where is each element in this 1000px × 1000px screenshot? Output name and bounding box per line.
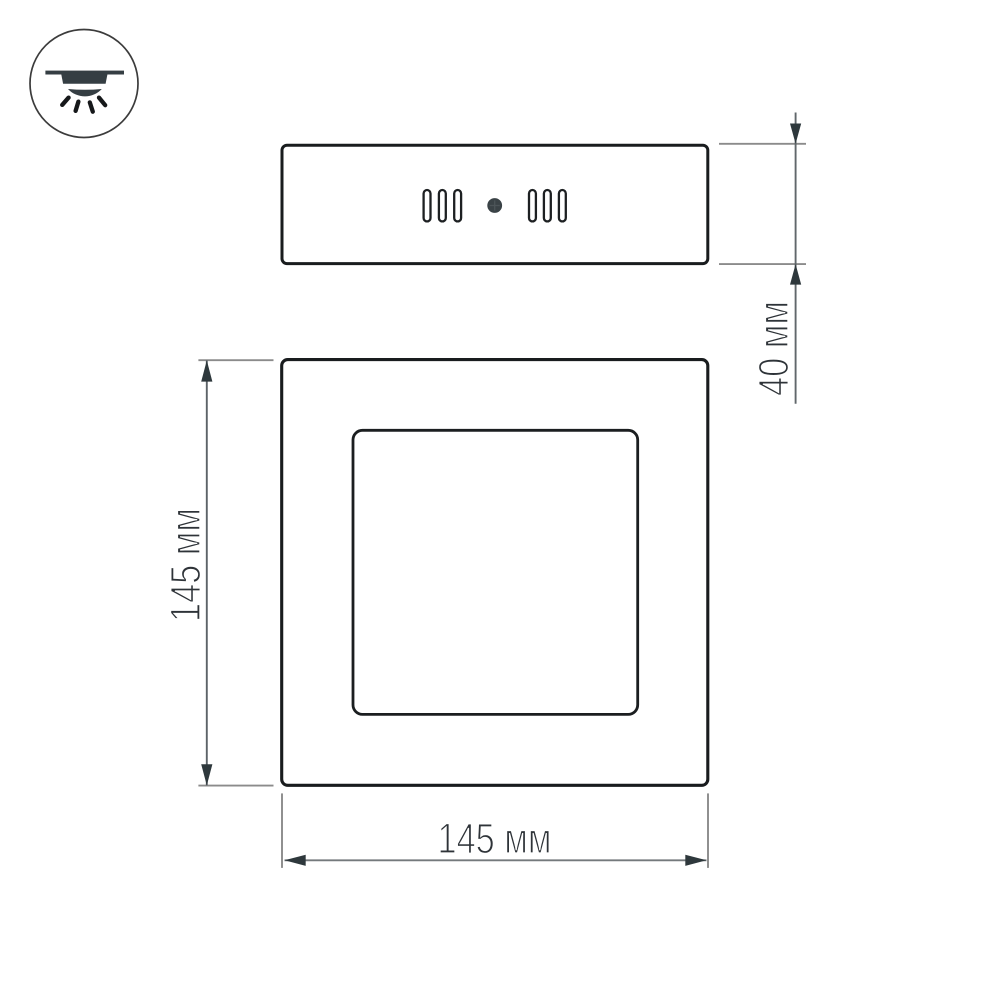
svg-text:145 мм: 145 мм — [163, 508, 210, 622]
svg-text:145 мм: 145 мм — [438, 816, 552, 863]
svg-text:40 мм: 40 мм — [751, 301, 798, 396]
